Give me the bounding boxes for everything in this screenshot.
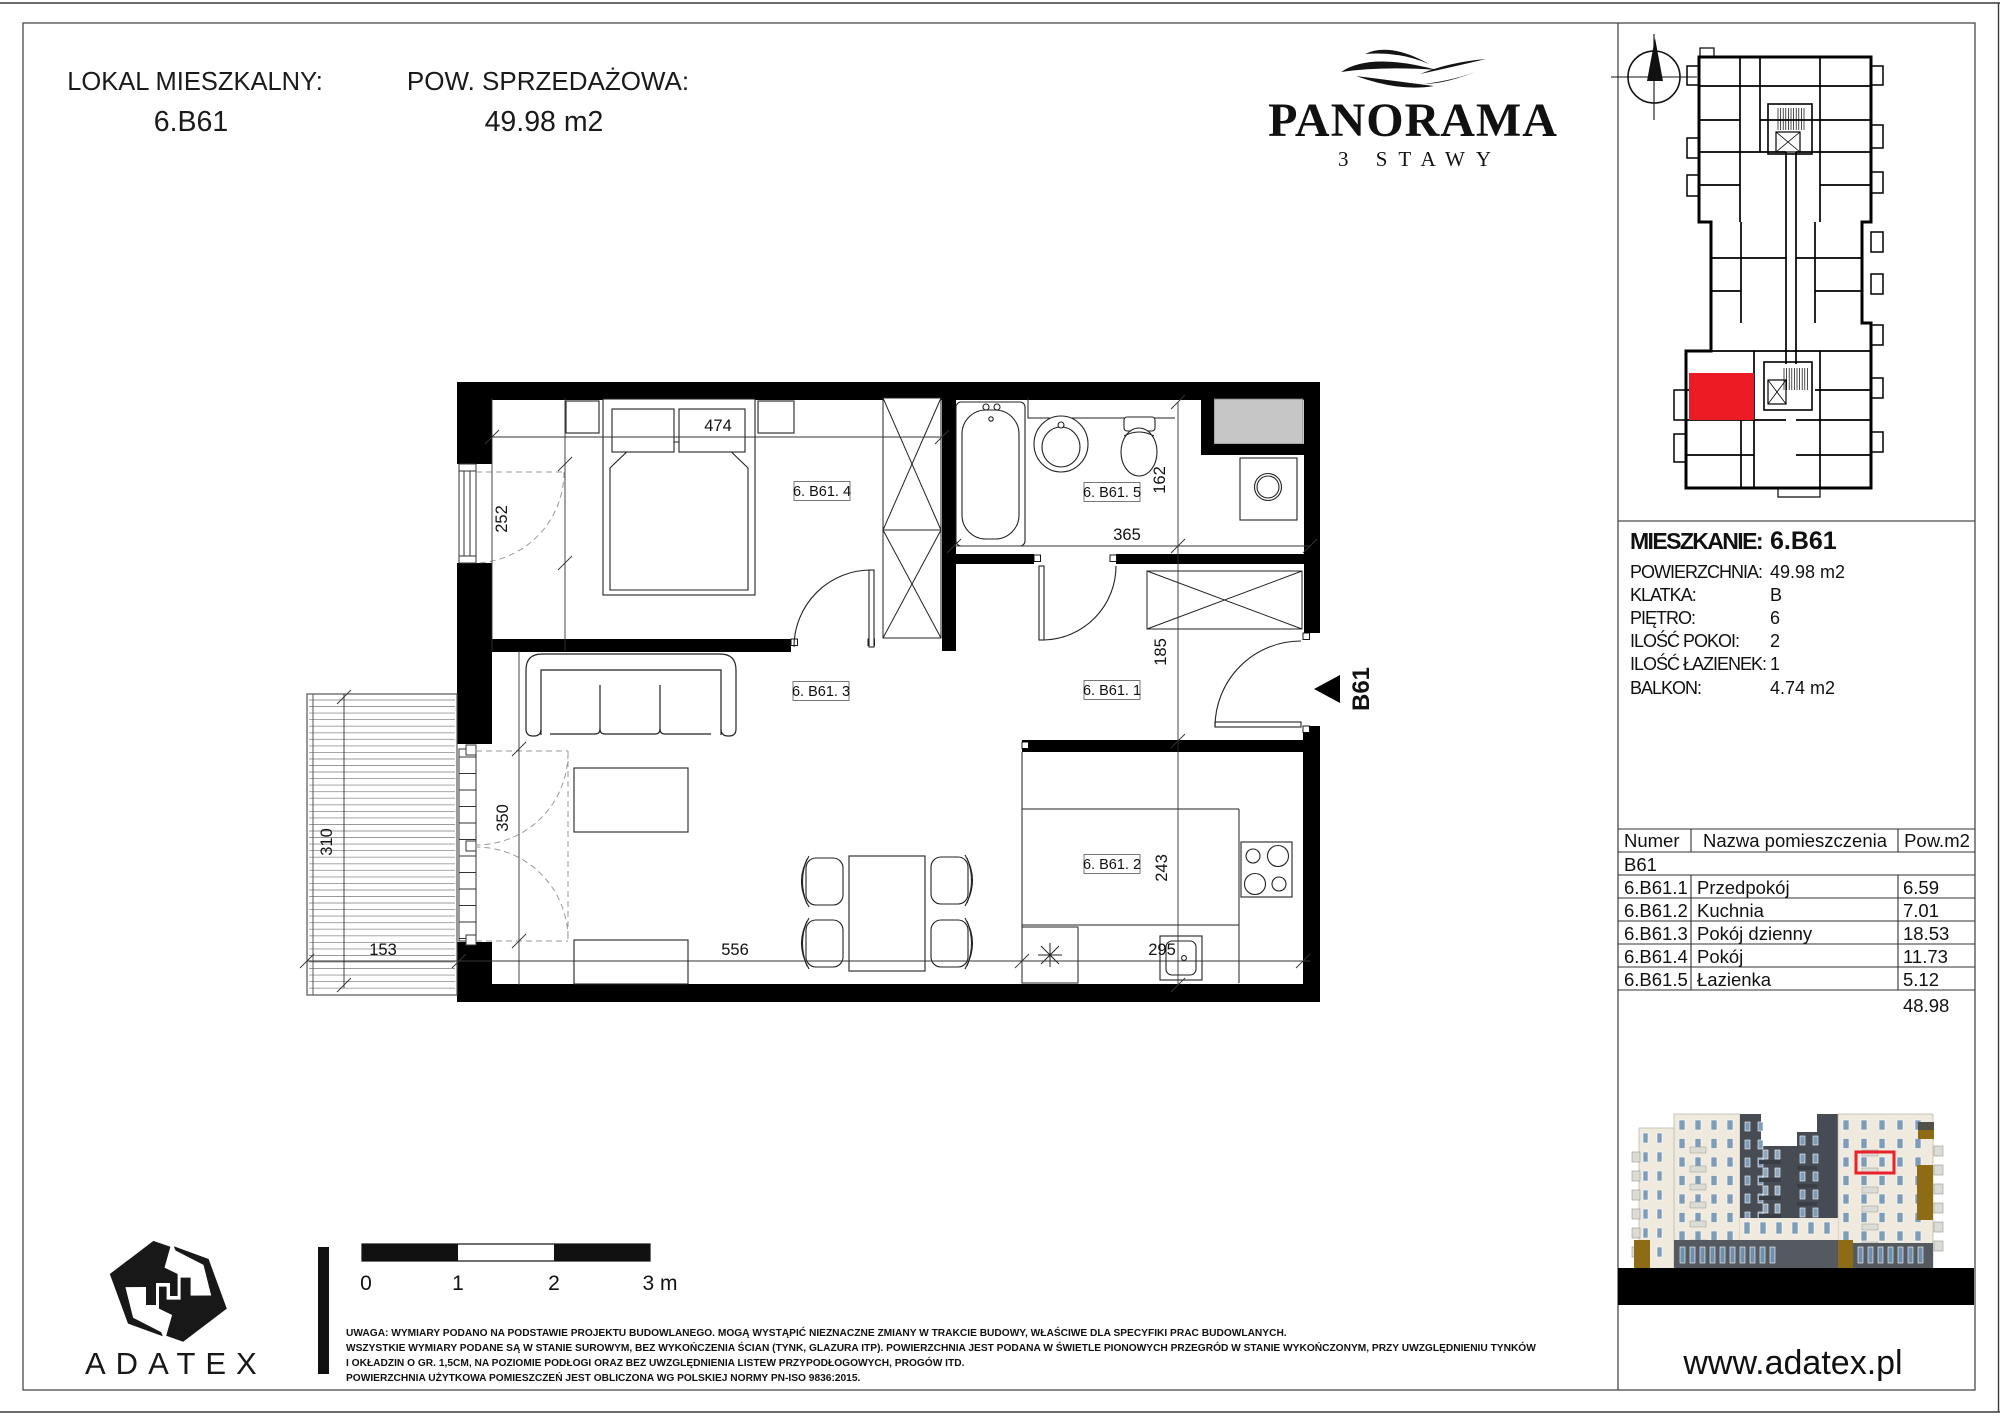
svg-text:Numer: Numer <box>1624 830 1680 851</box>
svg-text:WSZYSTKIE WYMIARY PODANE SĄ W: WSZYSTKIE WYMIARY PODANE SĄ W STANIE SUR… <box>346 1341 1536 1354</box>
svg-text:295: 295 <box>1148 941 1176 959</box>
svg-text:B61: B61 <box>1624 854 1657 875</box>
svg-text:49.98 m2: 49.98 m2 <box>485 106 604 138</box>
svg-text:6. B61. 3: 6. B61. 3 <box>792 684 850 700</box>
svg-text:6.B61: 6.B61 <box>1770 527 1837 555</box>
svg-text:1: 1 <box>452 1272 464 1295</box>
svg-text:2: 2 <box>548 1272 560 1295</box>
svg-text:UWAGA: WYMIARY PODANO NA PODST: UWAGA: WYMIARY PODANO NA PODSTAWIE PROJE… <box>346 1326 1287 1339</box>
svg-text:B: B <box>1770 585 1782 605</box>
svg-text:POW. SPRZEDAŻOWA:: POW. SPRZEDAŻOWA: <box>407 66 689 96</box>
svg-text:ADATEX: ADATEX <box>85 1346 267 1381</box>
svg-text:PIĘTRO:: PIĘTRO: <box>1630 608 1695 628</box>
svg-text:49.98 m2: 49.98 m2 <box>1770 562 1845 582</box>
svg-text:6.B61.5: 6.B61.5 <box>1624 969 1688 990</box>
svg-text:Kuchnia: Kuchnia <box>1697 900 1765 921</box>
svg-text:185: 185 <box>1152 638 1170 666</box>
svg-text:POWIERZCHNIA:: POWIERZCHNIA: <box>1630 562 1762 582</box>
svg-text:www.adatex.pl: www.adatex.pl <box>1682 1344 1902 1382</box>
svg-text:6. B61. 1: 6. B61. 1 <box>1083 683 1141 699</box>
svg-text:6.B61.2: 6.B61.2 <box>1624 900 1688 921</box>
svg-text:2: 2 <box>1770 631 1780 651</box>
svg-text:Pow.m2: Pow.m2 <box>1904 830 1970 851</box>
svg-text:1: 1 <box>1770 654 1780 674</box>
svg-text:I OKŁADZIN O GR. 1,5CM, NA POZ: I OKŁADZIN O GR. 1,5CM, NA POZIOMIE PODŁ… <box>346 1356 965 1369</box>
svg-text:KLATKA:: KLATKA: <box>1630 585 1696 605</box>
svg-text:4.74 m2: 4.74 m2 <box>1770 678 1835 698</box>
svg-text:48.98: 48.98 <box>1903 995 1949 1016</box>
svg-text:6.B61.3: 6.B61.3 <box>1624 923 1688 944</box>
svg-text:ILOŚĆ ŁAZIENEK:: ILOŚĆ ŁAZIENEK: <box>1630 653 1766 674</box>
svg-text:0: 0 <box>360 1272 372 1295</box>
svg-text:162: 162 <box>1151 466 1169 494</box>
svg-text:6. B61. 5: 6. B61. 5 <box>1083 485 1141 501</box>
svg-text:3 STAWY: 3 STAWY <box>1338 147 1502 171</box>
svg-text:6.59: 6.59 <box>1903 877 1939 898</box>
svg-text:6.B61.4: 6.B61.4 <box>1624 946 1688 967</box>
svg-text:Pokój dzienny: Pokój dzienny <box>1697 923 1813 944</box>
svg-text:5.12: 5.12 <box>1903 969 1939 990</box>
svg-text:Nazwa pomieszczenia: Nazwa pomieszczenia <box>1703 830 1888 851</box>
svg-text:LOKAL MIESZKALNY:: LOKAL MIESZKALNY: <box>67 68 323 96</box>
svg-text:153: 153 <box>369 941 397 959</box>
svg-text:MIESZKANIE:: MIESZKANIE: <box>1630 528 1762 554</box>
svg-text:B61: B61 <box>1348 667 1375 711</box>
svg-text:6: 6 <box>1770 608 1780 628</box>
svg-text:6. B61. 4: 6. B61. 4 <box>793 484 851 500</box>
svg-text:350: 350 <box>494 804 512 832</box>
svg-text:BALKON:: BALKON: <box>1630 678 1701 698</box>
svg-text:6.B61: 6.B61 <box>154 106 228 138</box>
svg-text:6. B61. 2: 6. B61. 2 <box>1083 857 1141 873</box>
svg-text:556: 556 <box>721 941 749 959</box>
svg-text:310: 310 <box>318 828 336 856</box>
svg-text:243: 243 <box>1153 854 1171 882</box>
svg-text:Łazienka: Łazienka <box>1697 969 1772 990</box>
svg-text:474: 474 <box>704 417 732 435</box>
svg-text:11.73: 11.73 <box>1903 946 1948 967</box>
svg-text:365: 365 <box>1113 526 1141 544</box>
svg-text:7.01: 7.01 <box>1903 900 1939 921</box>
svg-text:3 m: 3 m <box>642 1272 677 1295</box>
svg-text:6.B61.1: 6.B61.1 <box>1624 877 1688 898</box>
svg-text:Przedpokój: Przedpokój <box>1697 877 1790 898</box>
svg-text:18.53: 18.53 <box>1903 923 1949 944</box>
svg-text:POWIERZCHNIA UŻYTKOWA POMIESZC: POWIERZCHNIA UŻYTKOWA POMIESZCZEŃ JEST O… <box>346 1371 861 1384</box>
svg-text:252: 252 <box>493 505 511 533</box>
svg-text:Pokój: Pokój <box>1697 946 1743 967</box>
svg-text:PANORAMA: PANORAMA <box>1268 94 1558 147</box>
svg-text:ILOŚĆ POKOI:: ILOŚĆ POKOI: <box>1630 630 1739 651</box>
